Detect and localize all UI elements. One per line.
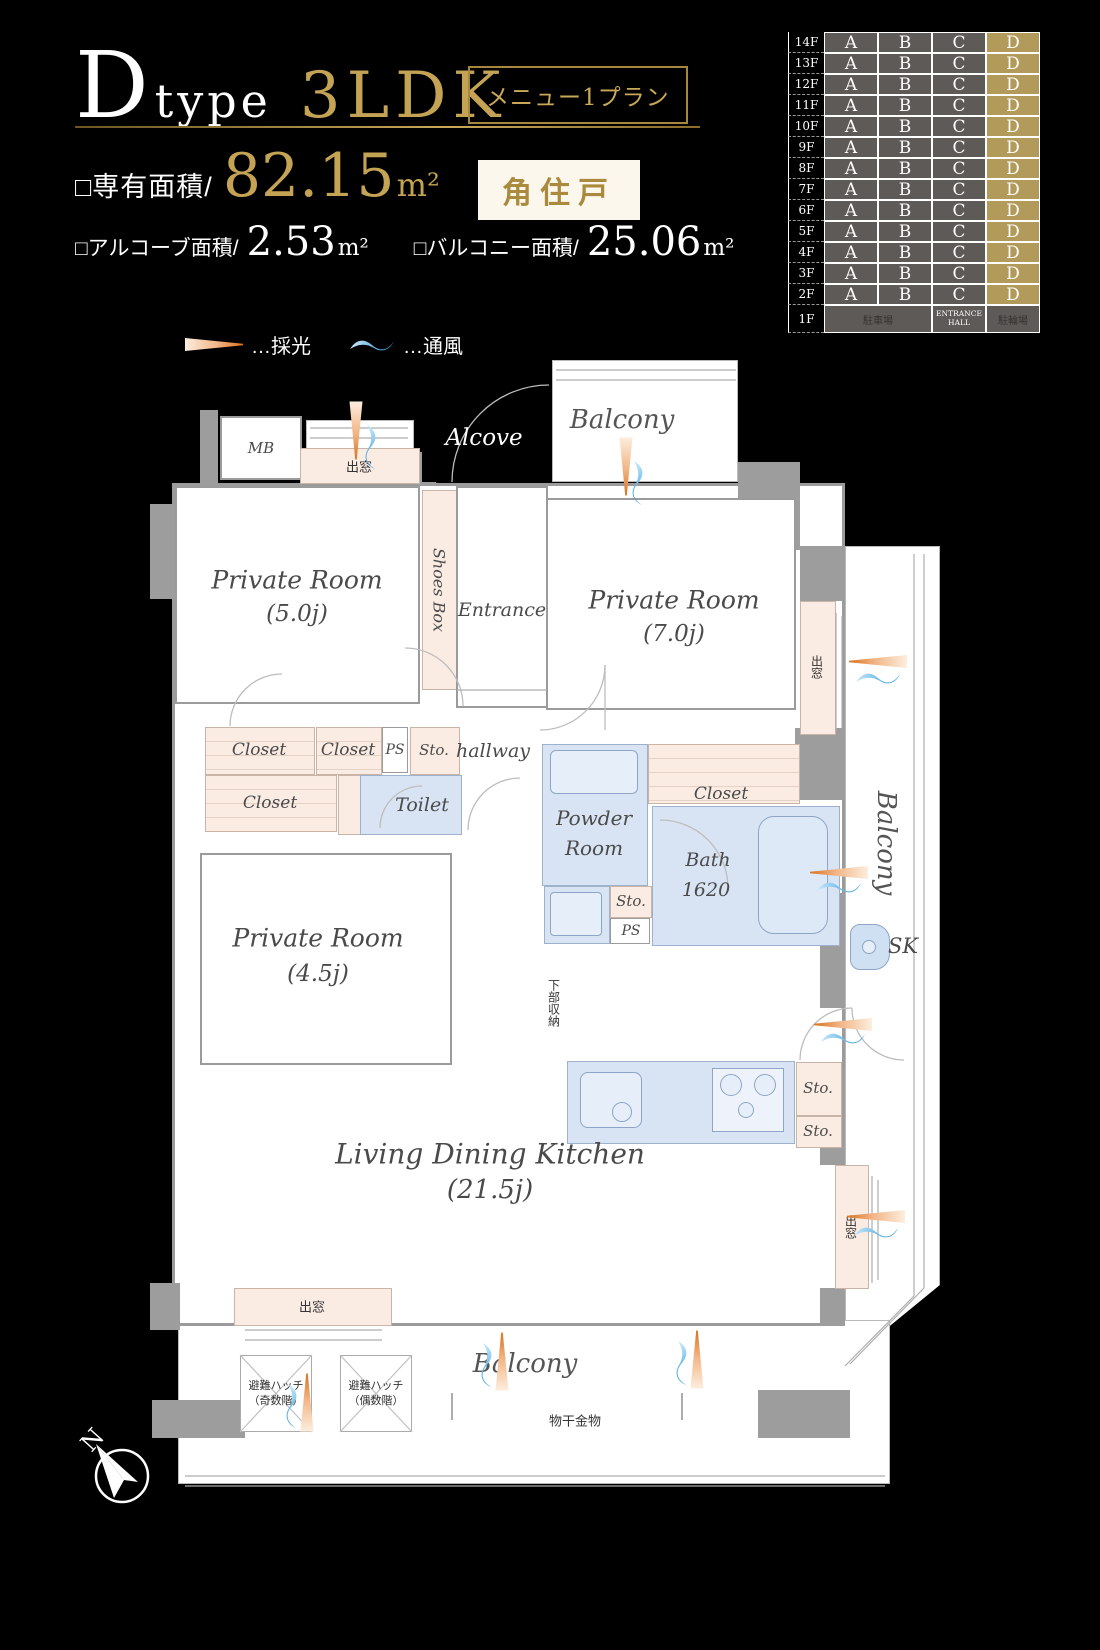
unit-cell-6F-D: D (986, 200, 1040, 221)
unit-cell-4F-D: D (986, 242, 1040, 263)
unit-cell-4F-C: C (932, 242, 986, 263)
room7-name: Private Room (588, 586, 759, 615)
alcove-area-unit: m² (338, 235, 369, 261)
ventilation-wave-icon (816, 879, 862, 895)
unit-cell-10F-B: B (878, 116, 932, 137)
gold-divider (75, 126, 700, 128)
unit-cell-5F-D: D (986, 221, 1040, 242)
unit-cell-3F-D: D (986, 263, 1040, 284)
hatch-even-label-2: （偶数階） (349, 1395, 404, 1409)
unit-cell-12F-A: A (824, 74, 878, 95)
type-word: type (155, 74, 272, 128)
unit-cell-8F-D: D (986, 158, 1040, 179)
closet-3-label: Closet (243, 793, 297, 813)
ventilation-wave-icon (284, 1383, 300, 1429)
unit-cell-2F-D: D (986, 284, 1040, 305)
wall (795, 728, 845, 800)
balcony-area-label: □バルコニー面積/ (414, 232, 579, 262)
unit-cell-7F-A: A (824, 179, 878, 200)
unit-cell-10F-C: C (932, 116, 986, 137)
unit-cell-2F-C: C (932, 284, 986, 305)
unit-cell-1F-parking: 駐車場 (824, 305, 932, 333)
alcove-label: Alcove (445, 425, 522, 451)
unit-cell-11F-D: D (986, 95, 1040, 116)
unit-cell-7F-C: C (932, 179, 986, 200)
unit-cell-9F-C: C (932, 137, 986, 158)
corner-unit-badge: 角住戸 (478, 160, 640, 220)
floor-label-8F: 8F (788, 158, 824, 179)
unit-cell-10F-A: A (824, 116, 878, 137)
unit-cell-10F-D: D (986, 116, 1040, 137)
ldk-size: (21.5j) (447, 1175, 533, 1205)
ventilation-wave-icon (479, 1342, 495, 1388)
slop-sink-drain (862, 940, 876, 954)
floor-label-13F: 13F (788, 53, 824, 74)
vanity-sink (550, 750, 638, 794)
floor-label-1F: 1F (788, 305, 824, 333)
closet-4-label: Closet (694, 784, 748, 804)
exclusive-area-row: □専有面積/ 82.15 m² (75, 146, 440, 206)
sto-k1-label: Sto. (803, 1079, 833, 1097)
floor-label-7F: 7F (788, 179, 824, 200)
unit-cell-7F-B: B (878, 179, 932, 200)
wall (200, 410, 218, 488)
ps-2-label: PS (621, 923, 640, 939)
ldk-name: Living Dining Kitchen (335, 1138, 645, 1171)
room7-size: (7.0j) (643, 621, 705, 647)
exclusive-area-label: □専有面積/ (75, 165, 213, 204)
unit-cell-6F-B: B (878, 200, 932, 221)
burner-icon (738, 1102, 754, 1118)
sk-label: SK (888, 934, 918, 958)
floor-label-14F: 14F (788, 32, 824, 53)
unit-cell-13F-A: A (824, 53, 878, 74)
daylight-arrow-icon (185, 338, 243, 351)
floor-label-2F: 2F (788, 284, 824, 305)
powder-room-label-1: Powder (556, 806, 632, 830)
compass: N (80, 1418, 160, 1518)
unit-cell-13F-C: C (932, 53, 986, 74)
unit-cell-2F-A: A (824, 284, 878, 305)
floor-label-6F: 6F (788, 200, 824, 221)
unit-cell-9F-A: A (824, 137, 878, 158)
ventilation-wave-icon (674, 1340, 690, 1386)
ventilation-wave-icon (855, 670, 901, 686)
washing-machine (550, 892, 602, 936)
unit-cell-8F-B: B (878, 158, 932, 179)
floor-plan: Alcove Balcony MB 出窓 Shoes Box Entrance … (150, 358, 950, 1508)
burner-icon (754, 1074, 776, 1096)
unit-cell-12F-B: B (878, 74, 932, 95)
sto-1-label: Sto. (419, 741, 449, 759)
unit-cell-7F-D: D (986, 179, 1040, 200)
floor-label-10F: 10F (788, 116, 824, 137)
wall (758, 1390, 850, 1438)
entrance-room (456, 486, 548, 708)
floor-matrix: 14FABCD13FABCD12FABCD11FABCD10FABCD9FABC… (788, 32, 1040, 333)
legend-daylight-label: …採光 (251, 330, 311, 359)
sto-2-label: Sto. (616, 892, 646, 910)
kitchen-sink (580, 1072, 642, 1128)
room45-size: (4.5j) (287, 961, 349, 987)
balcony-right-label: Balcony (871, 791, 901, 896)
unit-cell-2F-B: B (878, 284, 932, 305)
powder-room-label-2: Room (565, 836, 623, 860)
balcony-top-label: Balcony (570, 405, 675, 435)
unit-cell-11F-A: A (824, 95, 878, 116)
alcove-area-value: 2.53 (247, 222, 336, 262)
alcove-area-label: □アルコーブ面積/ (75, 232, 239, 262)
balcony-area-value: 25.06 (587, 222, 702, 262)
wall (150, 504, 176, 599)
unit-cell-12F-D: D (986, 74, 1040, 95)
closet-1-label: Closet (232, 740, 286, 760)
closet-2-label: Closet (321, 740, 375, 760)
floor-label-9F: 9F (788, 137, 824, 158)
unit-cell-14F-D: D (986, 32, 1040, 53)
type-letter: D (75, 40, 149, 132)
unit-cell-5F-B: B (878, 221, 932, 242)
wall (820, 1288, 845, 1326)
unit-cell-13F-B: B (878, 53, 932, 74)
ps-label: PS (385, 742, 404, 758)
room5-size: (5.0j) (266, 601, 328, 627)
bath-label-2: 1620 (682, 879, 730, 901)
floor-label-11F: 11F (788, 95, 824, 116)
sub-area-row: □アルコーブ面積/ 2.53 m² □バルコニー面積/ 25.06 m² (75, 222, 734, 262)
sto-k2-label: Sto. (803, 1122, 833, 1140)
unit-cell-11F-B: B (878, 95, 932, 116)
ventilation-wave-icon (363, 424, 379, 470)
unit-cell-3F-B: B (878, 263, 932, 284)
menu-plan-badge: メニュー1プラン (468, 66, 688, 124)
balcony-area-unit: m² (703, 235, 734, 261)
unit-cell-6F-C: C (932, 200, 986, 221)
unit-cell-11F-C: C (932, 95, 986, 116)
lower-storage-label: 下部収納 (546, 979, 563, 1027)
entrance-label: Entrance (458, 599, 546, 621)
bay-window-right1-label: 出窓 (809, 655, 826, 679)
unit-cell-6F-A: A (824, 200, 878, 221)
floor-label-4F: 4F (788, 242, 824, 263)
toilet-label: Toilet (395, 794, 449, 816)
unit-cell-9F-B: B (878, 137, 932, 158)
mb-label: MB (248, 439, 274, 457)
hatch-even-label-1: 避難ハッチ (349, 1380, 404, 1394)
wall (820, 546, 845, 601)
wall (152, 1400, 245, 1438)
room5-name: Private Room (211, 566, 382, 595)
unit-cell-5F-C: C (932, 221, 986, 242)
floor-label-3F: 3F (788, 263, 824, 284)
unit-cell-13F-D: D (986, 53, 1040, 74)
unit-cell-1F-entrance-hall: ENTRANCE HALL (932, 305, 986, 333)
unit-cell-4F-A: A (824, 242, 878, 263)
floor-label-5F: 5F (788, 221, 824, 242)
shoes-box-label: Shoes Box (430, 548, 449, 632)
ventilation-wave-icon (853, 1224, 899, 1240)
unit-cell-4F-B: B (878, 242, 932, 263)
toilet-cabinet (338, 775, 362, 835)
private-room-5 (175, 486, 420, 704)
unit-cell-8F-A: A (824, 158, 878, 179)
burner-icon (720, 1074, 742, 1096)
laundry-label: 物干金物 (549, 1411, 601, 1430)
unit-cell-3F-A: A (824, 263, 878, 284)
ventilation-wave-icon (630, 460, 646, 506)
sink-drain (612, 1102, 632, 1122)
unit-cell-14F-B: B (878, 32, 932, 53)
wall (150, 1283, 180, 1330)
unit-cell-1F-bicycle: 駐輪場 (986, 305, 1040, 333)
room45-name: Private Room (232, 924, 403, 953)
ventilation-wave-icon (820, 1030, 866, 1046)
unit-cell-3F-C: C (932, 263, 986, 284)
bath-label-1: Bath (685, 849, 730, 871)
private-room-45 (200, 853, 452, 1065)
legend-ventilation-label: …通風 (403, 330, 463, 359)
unit-cell-9F-D: D (986, 137, 1040, 158)
exclusive-area-value: 82.15 (223, 146, 395, 206)
page-title: D type 3LDK (75, 40, 506, 133)
alcove-area (422, 360, 552, 482)
bathtub (758, 816, 828, 934)
unit-cell-5F-A: A (824, 221, 878, 242)
hallway-label: hallway (456, 740, 530, 762)
unit-cell-8F-C: C (932, 158, 986, 179)
ventilation-wave-icon (349, 337, 395, 353)
unit-cell-14F-A: A (824, 32, 878, 53)
exclusive-area-unit: m² (397, 166, 440, 204)
floor-label-12F: 12F (788, 74, 824, 95)
unit-cell-12F-C: C (932, 74, 986, 95)
unit-cell-14F-C: C (932, 32, 986, 53)
bay-window-bottom-label: 出窓 (299, 1297, 325, 1316)
legend: …採光 …通風 (185, 330, 463, 359)
